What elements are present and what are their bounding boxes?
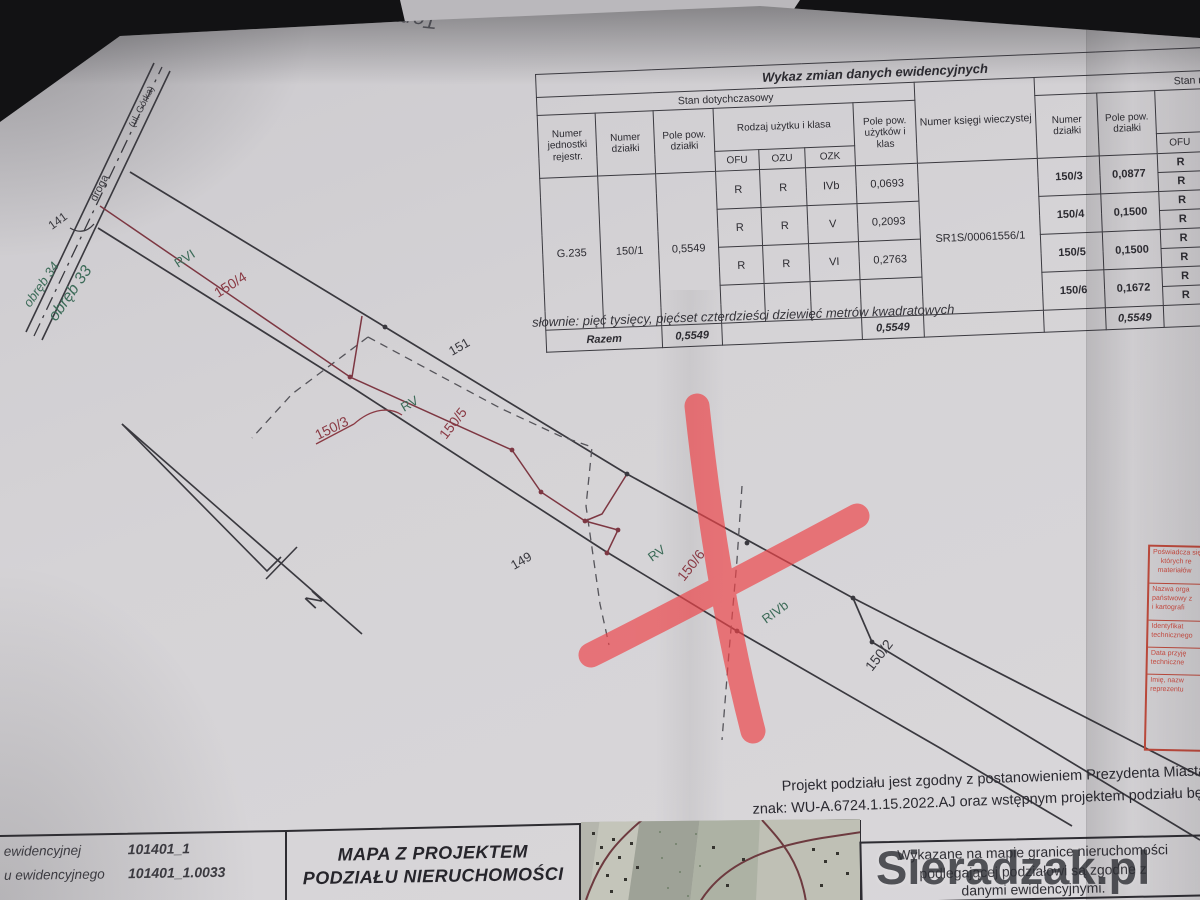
- watermark: Sieradzak.pl: [876, 840, 1150, 895]
- map-title-line2: PODZIAŁU NIERUCHOMOŚCI: [303, 864, 564, 890]
- label-150-2: 150/2: [862, 636, 896, 674]
- col-ozu-old: OZU: [759, 148, 806, 170]
- label-rv-upper: RV: [398, 393, 421, 415]
- col-parcel-old: Numer działki: [595, 111, 655, 176]
- old-unit: G.235: [540, 176, 604, 330]
- col-parcel-new: Numer działki: [1035, 93, 1099, 158]
- razem-label: Razem: [546, 326, 663, 353]
- col-ofu-old: OFU: [715, 150, 760, 172]
- new-parcel-1: 150/3: [1037, 156, 1100, 196]
- map-title-line1: MAPA Z PROJEKTEM: [337, 841, 528, 865]
- identifier-block: ewidencyjnej 101401_1 u ewidencyjnego 10…: [0, 834, 284, 900]
- podgik-certification-stamp: Poświadcza się których re materiałów Naz…: [1144, 545, 1200, 754]
- label-149: 149: [508, 549, 534, 573]
- red-x-marker: [591, 406, 857, 731]
- map-title-block: MAPA Z PROJEKTEM PODZIAŁU NIERUCHOMOŚCI: [287, 827, 578, 900]
- label-150-5: 150/5: [436, 404, 470, 442]
- district-id-label: u ewidencyjnego: [4, 867, 105, 883]
- col-area-new: Pole pow. działki: [1097, 91, 1157, 156]
- label-road: droga: [88, 172, 112, 203]
- new-parcel-3: 150/5: [1040, 232, 1103, 272]
- old-area: 0,5549: [656, 171, 722, 325]
- razem-area-new: 0,5549: [1105, 305, 1164, 329]
- class-contour-dashed-lines: [252, 337, 742, 740]
- kw-number: SR1S/00061556/1: [917, 158, 1043, 315]
- old-parcel: 150/1: [598, 174, 662, 328]
- col-area-old: Pole pow. działki: [653, 108, 715, 173]
- district-id-value: 101401_1.0033: [128, 864, 226, 881]
- col-ozk-old: OZK: [805, 146, 856, 168]
- label-rivb: RIVb: [759, 597, 791, 626]
- label-151: 151: [446, 335, 472, 359]
- unit-id-label: ewidencyjnej: [4, 843, 81, 859]
- kw-column-header: Numer księgi wieczystej: [914, 77, 1037, 163]
- boundary-point-dots: [348, 325, 875, 645]
- orientation-minimap: [581, 816, 862, 900]
- label-rv-lower: RV: [645, 542, 669, 565]
- col-unit: Numer jednostki rejestr.: [537, 113, 597, 178]
- label-150-3: 150/3: [312, 413, 351, 443]
- col-ofu-new: OFU: [1156, 132, 1200, 154]
- razem-area-old: 0,5549: [662, 323, 723, 347]
- new-parcel-2: 150/4: [1039, 194, 1102, 234]
- map-sheet: N RVI 150/4 151 RV 150/3 150/5 149 RV 15…: [0, 0, 1200, 900]
- col-use-class-new: Rodzaj użytku i klasa: [1155, 82, 1200, 133]
- label-leaders: [70, 224, 402, 444]
- north-label: N: [301, 587, 328, 614]
- label-150-6: 150/6: [674, 546, 708, 584]
- photographed-survey-map: N RVI 150/4 151 RV 150/3 150/5 149 RV 15…: [0, 0, 1200, 900]
- col-use-area: Pole pow. użytków i klas: [853, 100, 917, 165]
- label-141: 141: [46, 209, 71, 232]
- unit-id-value: 101401_1: [128, 840, 191, 857]
- label-rvi: RVI: [171, 246, 197, 270]
- col-use-class-old: Rodzaj użytku i klasa: [713, 103, 855, 152]
